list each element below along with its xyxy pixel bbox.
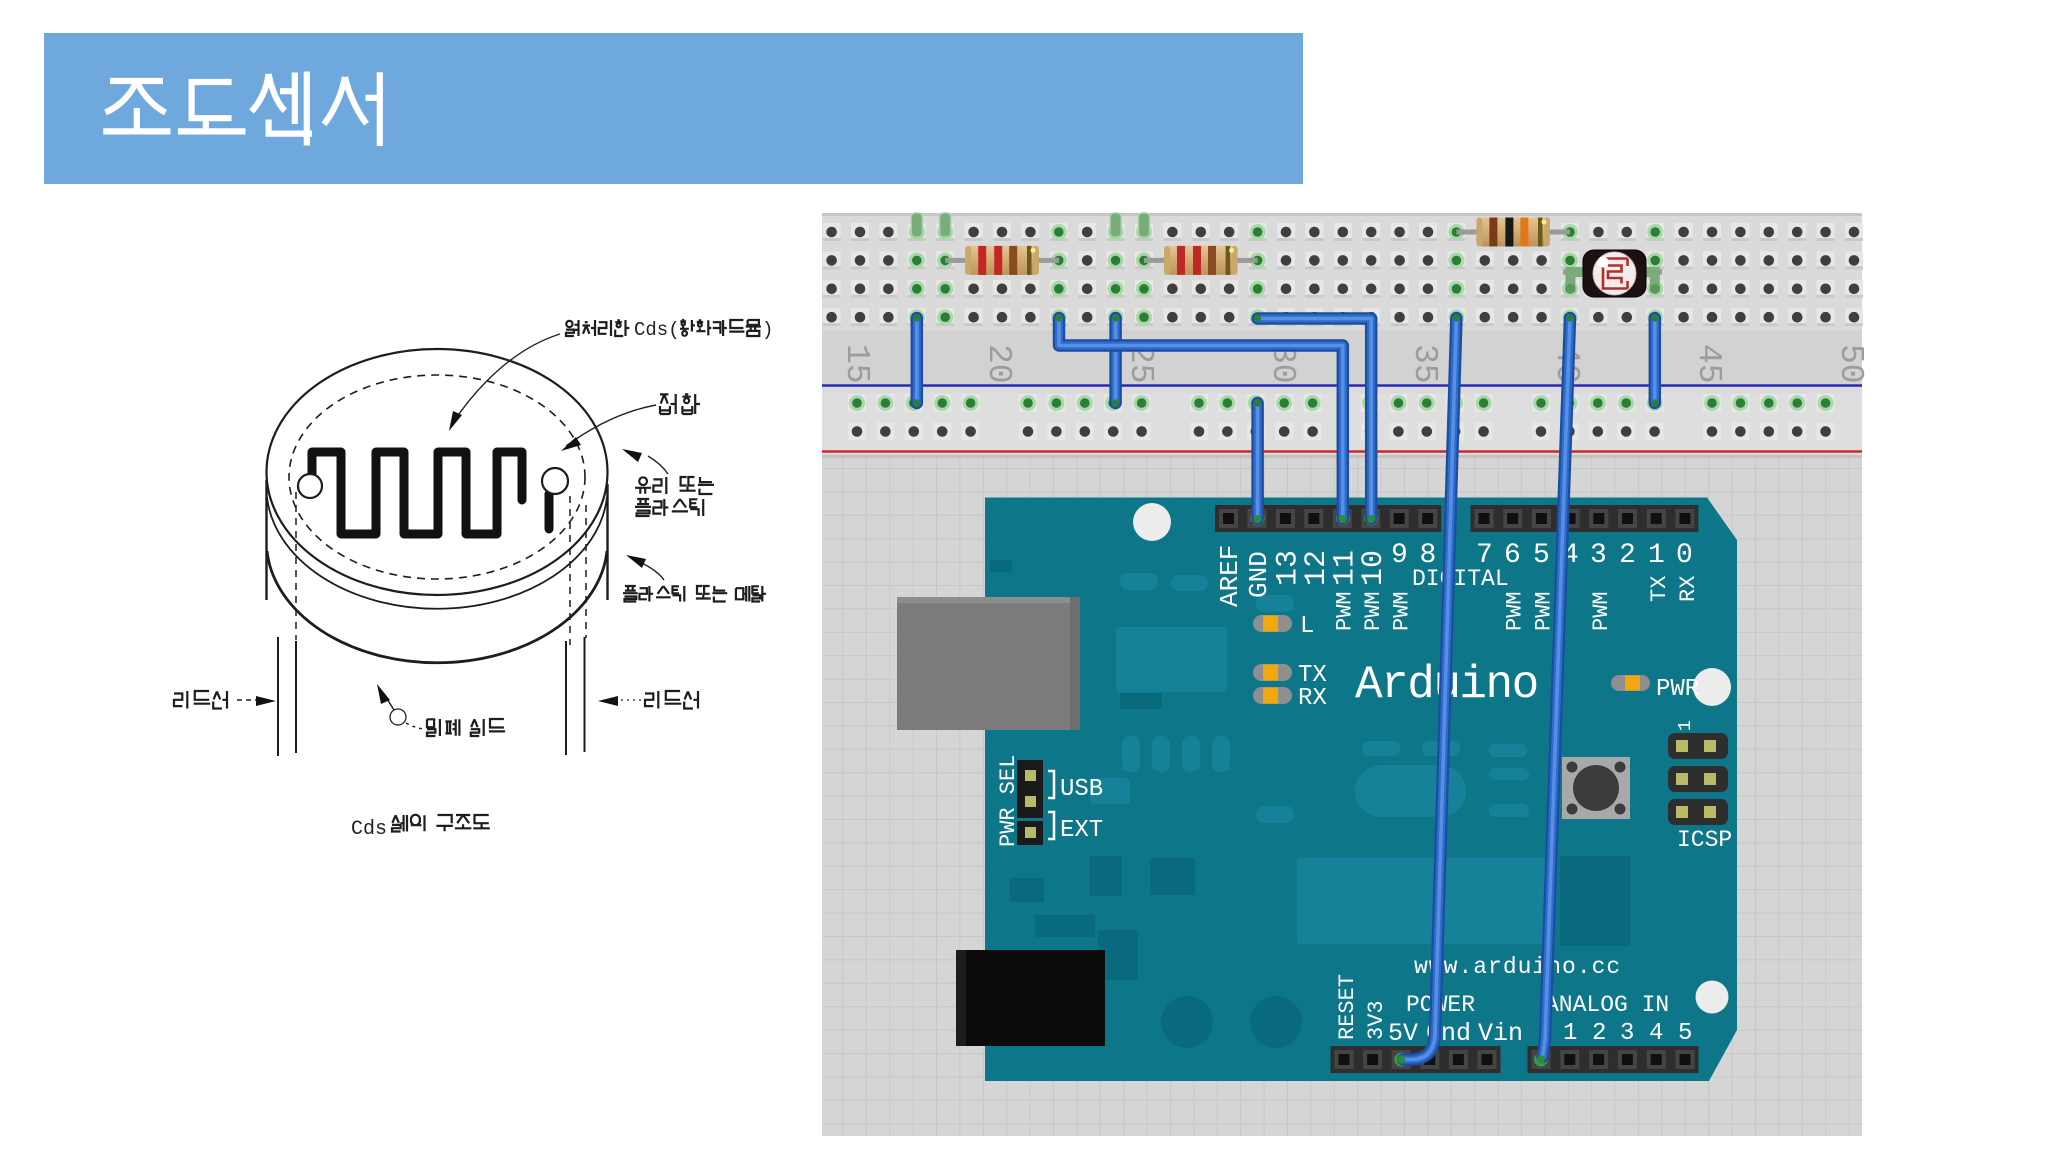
svg-text:Vin: Vin: [1478, 1019, 1523, 1048]
svg-text:Cds(: Cds(: [634, 319, 680, 341]
svg-text:9: 9: [1391, 540, 1408, 571]
svg-text:1: 1: [1648, 540, 1665, 571]
svg-text:L: L: [1300, 613, 1314, 640]
svg-text:PWM: PWM: [1503, 591, 1528, 631]
svg-text:3V3: 3V3: [1364, 1000, 1389, 1040]
svg-text:PWM: PWM: [1333, 591, 1358, 631]
svg-text:EXT: EXT: [1060, 817, 1103, 844]
svg-text:35: 35: [1406, 344, 1443, 384]
svg-text:1: 1: [1676, 720, 1696, 731]
svg-text:2: 2: [1619, 540, 1636, 571]
svg-text:50: 50: [1832, 344, 1869, 384]
svg-text:RX: RX: [1298, 685, 1327, 712]
svg-text:3: 3: [1590, 540, 1607, 571]
svg-text:): ): [762, 319, 773, 341]
svg-text:1: 1: [1563, 1020, 1577, 1047]
svg-text:5: 5: [1533, 540, 1550, 571]
svg-text:RX: RX: [1676, 576, 1701, 602]
svg-text:RESET: RESET: [1335, 974, 1360, 1040]
svg-text:PWM: PWM: [1390, 591, 1415, 631]
svg-text:15: 15: [838, 344, 875, 384]
svg-text:TX: TX: [1647, 576, 1672, 602]
svg-text:DIGITAL: DIGITAL: [1412, 566, 1509, 592]
svg-text:3: 3: [1620, 1020, 1634, 1047]
svg-text:Cds: Cds: [351, 818, 387, 841]
svg-text:0: 0: [1676, 540, 1693, 571]
svg-text:ICSP: ICSP: [1677, 827, 1732, 853]
svg-text:USB: USB: [1060, 776, 1103, 803]
svg-text:2: 2: [1592, 1020, 1606, 1047]
svg-text:5: 5: [1678, 1020, 1692, 1047]
svg-text:PWM: PWM: [1589, 591, 1614, 631]
svg-text:GND: GND: [1244, 551, 1274, 598]
svg-text:AREF: AREF: [1215, 545, 1245, 607]
svg-text:PWM: PWM: [1361, 591, 1386, 631]
svg-text:PWR SEL: PWR SEL: [996, 755, 1021, 847]
svg-text:10: 10: [1357, 550, 1391, 586]
svg-text:5V: 5V: [1388, 1019, 1418, 1048]
svg-text:45: 45: [1690, 344, 1727, 384]
svg-text:www.arduino.cc: www.arduino.cc: [1414, 954, 1621, 980]
svg-text:20: 20: [980, 344, 1017, 384]
svg-text:PWR: PWR: [1656, 676, 1699, 703]
svg-text:ANALOG IN: ANALOG IN: [1545, 992, 1669, 1018]
svg-text:4: 4: [1649, 1020, 1663, 1047]
svg-text:PWM: PWM: [1531, 591, 1556, 631]
